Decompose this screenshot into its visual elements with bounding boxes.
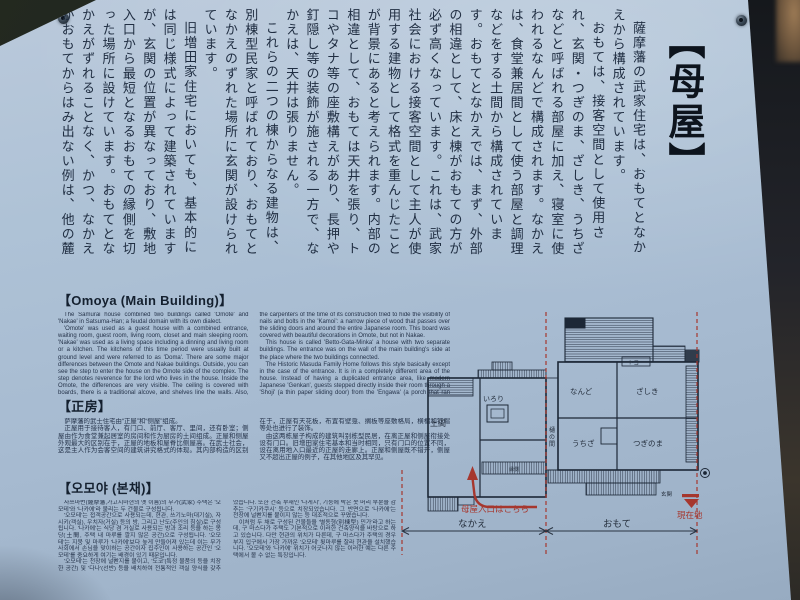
- chinese-section: 【正房】 萨摩藩的武士住宅由“正屋”和“侧屋”组成。 正屋用于接待客人，有门口、…: [58, 396, 450, 472]
- label-hinoma: 樋の間: [549, 426, 555, 448]
- label-you-are-here: 現在地: [677, 510, 703, 520]
- photo-of-information-sign: 【母屋】 薩摩藩の武家住宅は、おもてとなかえから構成されています。 おもては、接…: [0, 0, 800, 600]
- label-genkan: 玄関: [661, 490, 673, 498]
- label-doma: 土間: [430, 418, 446, 428]
- floor-plan-diagram: 土間 いろり なんど ざしき うちざ つぎのま トコ 樋の間 縁側 玄関: [395, 295, 800, 567]
- japanese-main-text: 薩摩藩の武家住宅は、おもてとなかえから構成されています。 おもては、接客空間とし…: [56, 8, 648, 268]
- label-entrance-note: 母屋入口はこちら: [461, 504, 529, 514]
- jp-paragraph: これらの二つの棟からなる建物は、別棟型民家と呼ばれており、おもてとなかえのずれた…: [199, 8, 281, 268]
- label-nando: なんど: [570, 387, 593, 396]
- label-zashiki: ざしき: [636, 386, 659, 396]
- chinese-body: 萨摩藩的武士住宅由“正屋”和“侧屋”组成。 正屋用于接待客人，有门口、前厅、客厅…: [58, 418, 450, 472]
- label-engawa: 縁側: [509, 466, 519, 473]
- plan-dimension-lines: [402, 528, 697, 535]
- label-span-omote: おもて: [603, 519, 631, 530]
- jp-paragraph: 旧増田家住宅においても、基本的には同じ様式によって建築されていますが、玄関の位置…: [56, 8, 199, 268]
- jp-paragraph: おもては、接客空間として使用され、玄関・つぎのま、ざしき、うちざなどと呼ばれる部…: [281, 8, 608, 268]
- label-tsuginoma: つぎのま: [633, 438, 663, 448]
- ko-paragraph: 이처럼 두 채로 구성된 건물들을 '별동형(別棟型) 민가'라고 하는데, 구…: [233, 520, 396, 560]
- label-uchiza: うちざ: [572, 438, 595, 448]
- label-irori: いろり: [483, 395, 504, 403]
- korean-body: 사쓰마번(薩摩藩,가고시마현의 옛 이름)의 무가(武家) 주택은 '오모테'와…: [58, 500, 396, 582]
- en-paragraph: The Samurai house combined two buildings…: [58, 312, 249, 326]
- ko-paragraph: '오모테'는 접객공간으로 사용되는데, 현관, 쓰기노마(대기실), 자시키(…: [58, 513, 221, 559]
- label-span-nakae: なかえ: [458, 519, 487, 530]
- korean-heading: 【오모야 (본채)】: [58, 478, 396, 497]
- screw-top-right: [736, 15, 747, 26]
- ko-paragraph: 사쓰마번(薩摩藩,가고시마현의 옛 이름)의 무가(武家) 주택은 '오모테'와…: [58, 500, 221, 513]
- chinese-heading: 【正房】: [58, 396, 450, 415]
- screw-pit: [739, 18, 743, 22]
- english-body: The Samurai house combined two buildings…: [58, 312, 450, 400]
- jp-paragraph: 薩摩藩の武家住宅は、おもてとなかえから構成されています。: [607, 8, 648, 268]
- sign-panel: 【母屋】 薩摩藩の武家住宅は、おもてとなかえから構成されています。 おもては、接…: [0, 0, 800, 600]
- background-tree-trunk: [776, 0, 800, 62]
- label-toko: トコ: [628, 360, 639, 367]
- english-section: 【Omoya (Main Building)】 The Samurai hous…: [58, 290, 450, 400]
- plan-omote-building: [546, 318, 710, 495]
- plan-nakae-building: [428, 362, 546, 511]
- sign-title: 【母屋】: [656, 22, 708, 190]
- english-heading: 【Omoya (Main Building)】: [58, 290, 450, 309]
- korean-section: 【오모야 (본채)】 사쓰마번(薩摩藩,가고시마현의 옛 이름)의 무가(武家)…: [58, 478, 396, 582]
